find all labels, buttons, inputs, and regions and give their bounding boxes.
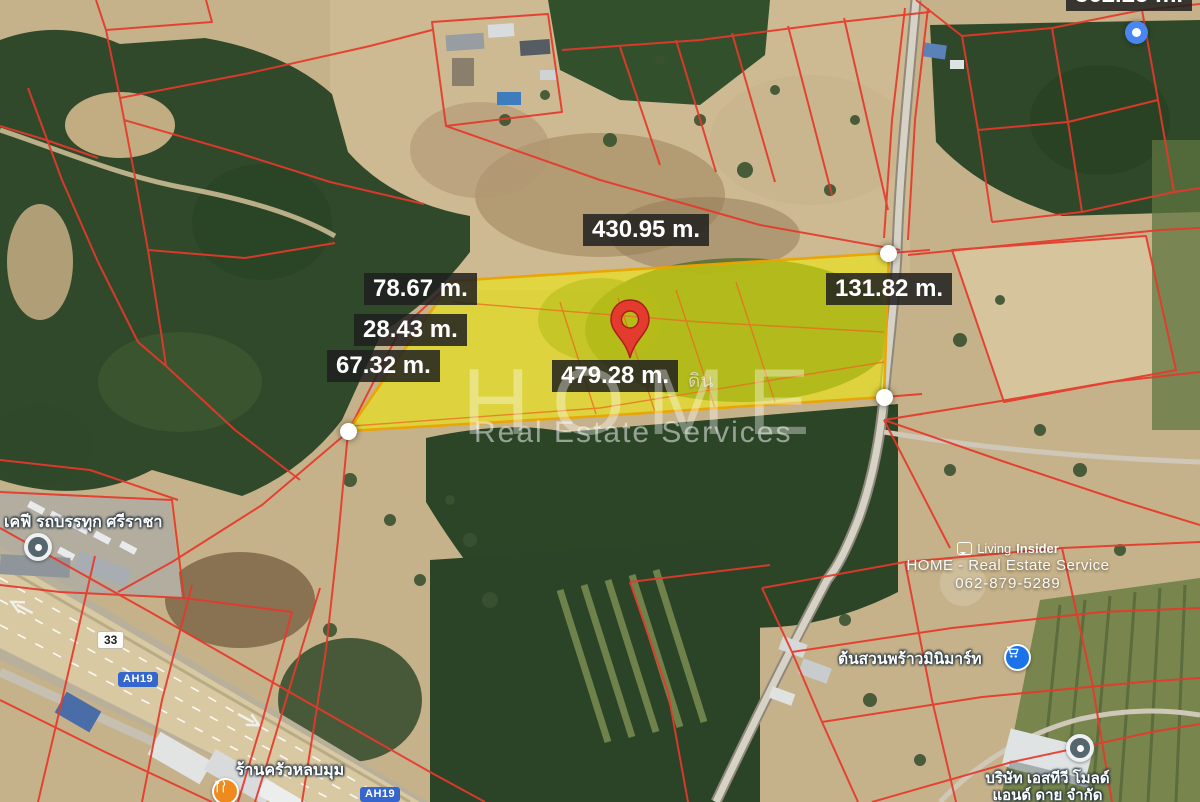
truck-shop-poi-label[interactable]: เคฟี รถบรรทุก ศรีราชา: [4, 510, 162, 535]
company-poi-label[interactable]: บริษัท เอสทีวี โมลด์ แอนด์ ดาย จำกัด: [965, 770, 1130, 802]
corner-watermark-brand-row: Living Insider: [893, 541, 1123, 556]
minimart-poi-icon[interactable]: [1004, 644, 1031, 671]
plot-vertex-dot-se[interactable]: [876, 389, 893, 406]
corner-watermark-phone: 062-879-5289: [893, 575, 1123, 592]
ah19-shield-upper: AH19: [118, 672, 158, 687]
plot-vertex-dot-ne[interactable]: [880, 245, 897, 262]
measurement-label-131: 131.82 m.: [826, 273, 952, 305]
gps-location-dot[interactable]: [1125, 21, 1148, 44]
measurement-label-top-partial: 362.25 m.: [1066, 0, 1192, 11]
restaurant-poi-label[interactable]: ร้านครัวหลบมุม: [210, 758, 370, 783]
measurement-label-67: 67.32 m.: [327, 350, 440, 382]
truck-shop-poi-icon[interactable]: [24, 533, 52, 561]
company-poi-icon[interactable]: [1066, 734, 1094, 762]
shopping-cart-icon: [1006, 646, 1019, 659]
plot-vertex-dot-w[interactable]: [340, 423, 357, 440]
brand-regular: Living: [977, 541, 1011, 556]
corner-watermark-service: HOME - Real Estate Service: [893, 557, 1123, 574]
center-watermark-tagline: Real Estate Services: [474, 416, 792, 450]
company-poi-label-line1: บริษัท เอสทีวี โมลด์: [965, 770, 1130, 787]
company-poi-label-line2: แอนด์ ดาย จำกัด: [965, 787, 1130, 802]
measurement-label-430: 430.95 m.: [583, 214, 709, 246]
brand-bold: Insider: [1016, 541, 1059, 556]
measurement-label-28: 28.43 m.: [354, 314, 467, 346]
route-33-shield: 33: [97, 631, 124, 649]
minimart-poi-label[interactable]: ต้นสวนพร้าวมินิมาร์ท: [838, 646, 982, 671]
measurement-label-78: 78.67 m.: [364, 273, 477, 305]
ah19-shield-lower: AH19: [360, 787, 400, 802]
living-insider-icon: [957, 542, 972, 555]
corner-watermark: Living Insider HOME - Real Estate Servic…: [893, 541, 1123, 592]
satellite-map: 362.25 m. 430.95 m. 78.67 m. 28.43 m. 67…: [0, 0, 1200, 802]
